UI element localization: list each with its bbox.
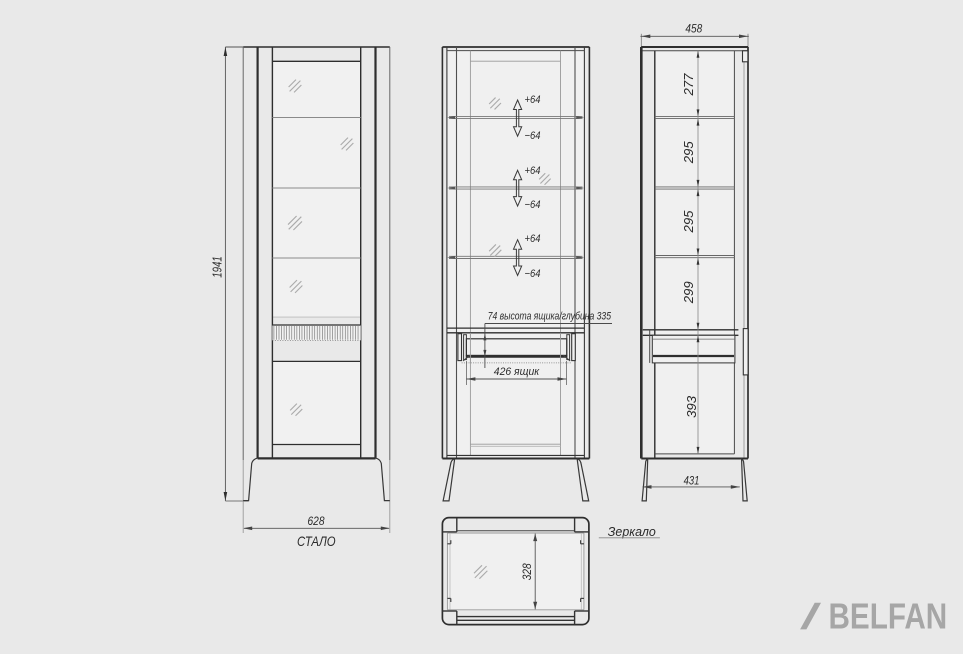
svg-text:Зеркало: Зеркало bbox=[608, 525, 656, 539]
svg-text:299: 299 bbox=[681, 281, 696, 304]
svg-text:277: 277 bbox=[681, 73, 696, 97]
svg-text:458: 458 bbox=[685, 22, 702, 36]
svg-text:BELFAN: BELFAN bbox=[829, 596, 948, 637]
svg-text:628: 628 bbox=[308, 514, 325, 528]
svg-text:328: 328 bbox=[520, 563, 534, 580]
svg-text:74 высота ящика/глубина 335: 74 высота ящика/глубина 335 bbox=[488, 311, 612, 323]
svg-text:−64: −64 bbox=[525, 268, 541, 280]
svg-text:431: 431 bbox=[684, 474, 700, 488]
svg-text:393: 393 bbox=[684, 395, 699, 418]
svg-text:426 ящик: 426 ящик bbox=[494, 366, 540, 378]
svg-text:295: 295 bbox=[681, 141, 696, 165]
svg-text:СТАЛО: СТАЛО bbox=[297, 533, 336, 549]
svg-text:+64: +64 bbox=[525, 165, 541, 177]
svg-text:−64: −64 bbox=[525, 130, 541, 142]
svg-text:1941: 1941 bbox=[209, 256, 224, 278]
svg-text:+64: +64 bbox=[525, 94, 541, 106]
svg-text:−64: −64 bbox=[525, 199, 541, 211]
svg-text:+64: +64 bbox=[525, 233, 541, 245]
svg-text:295: 295 bbox=[681, 210, 696, 234]
